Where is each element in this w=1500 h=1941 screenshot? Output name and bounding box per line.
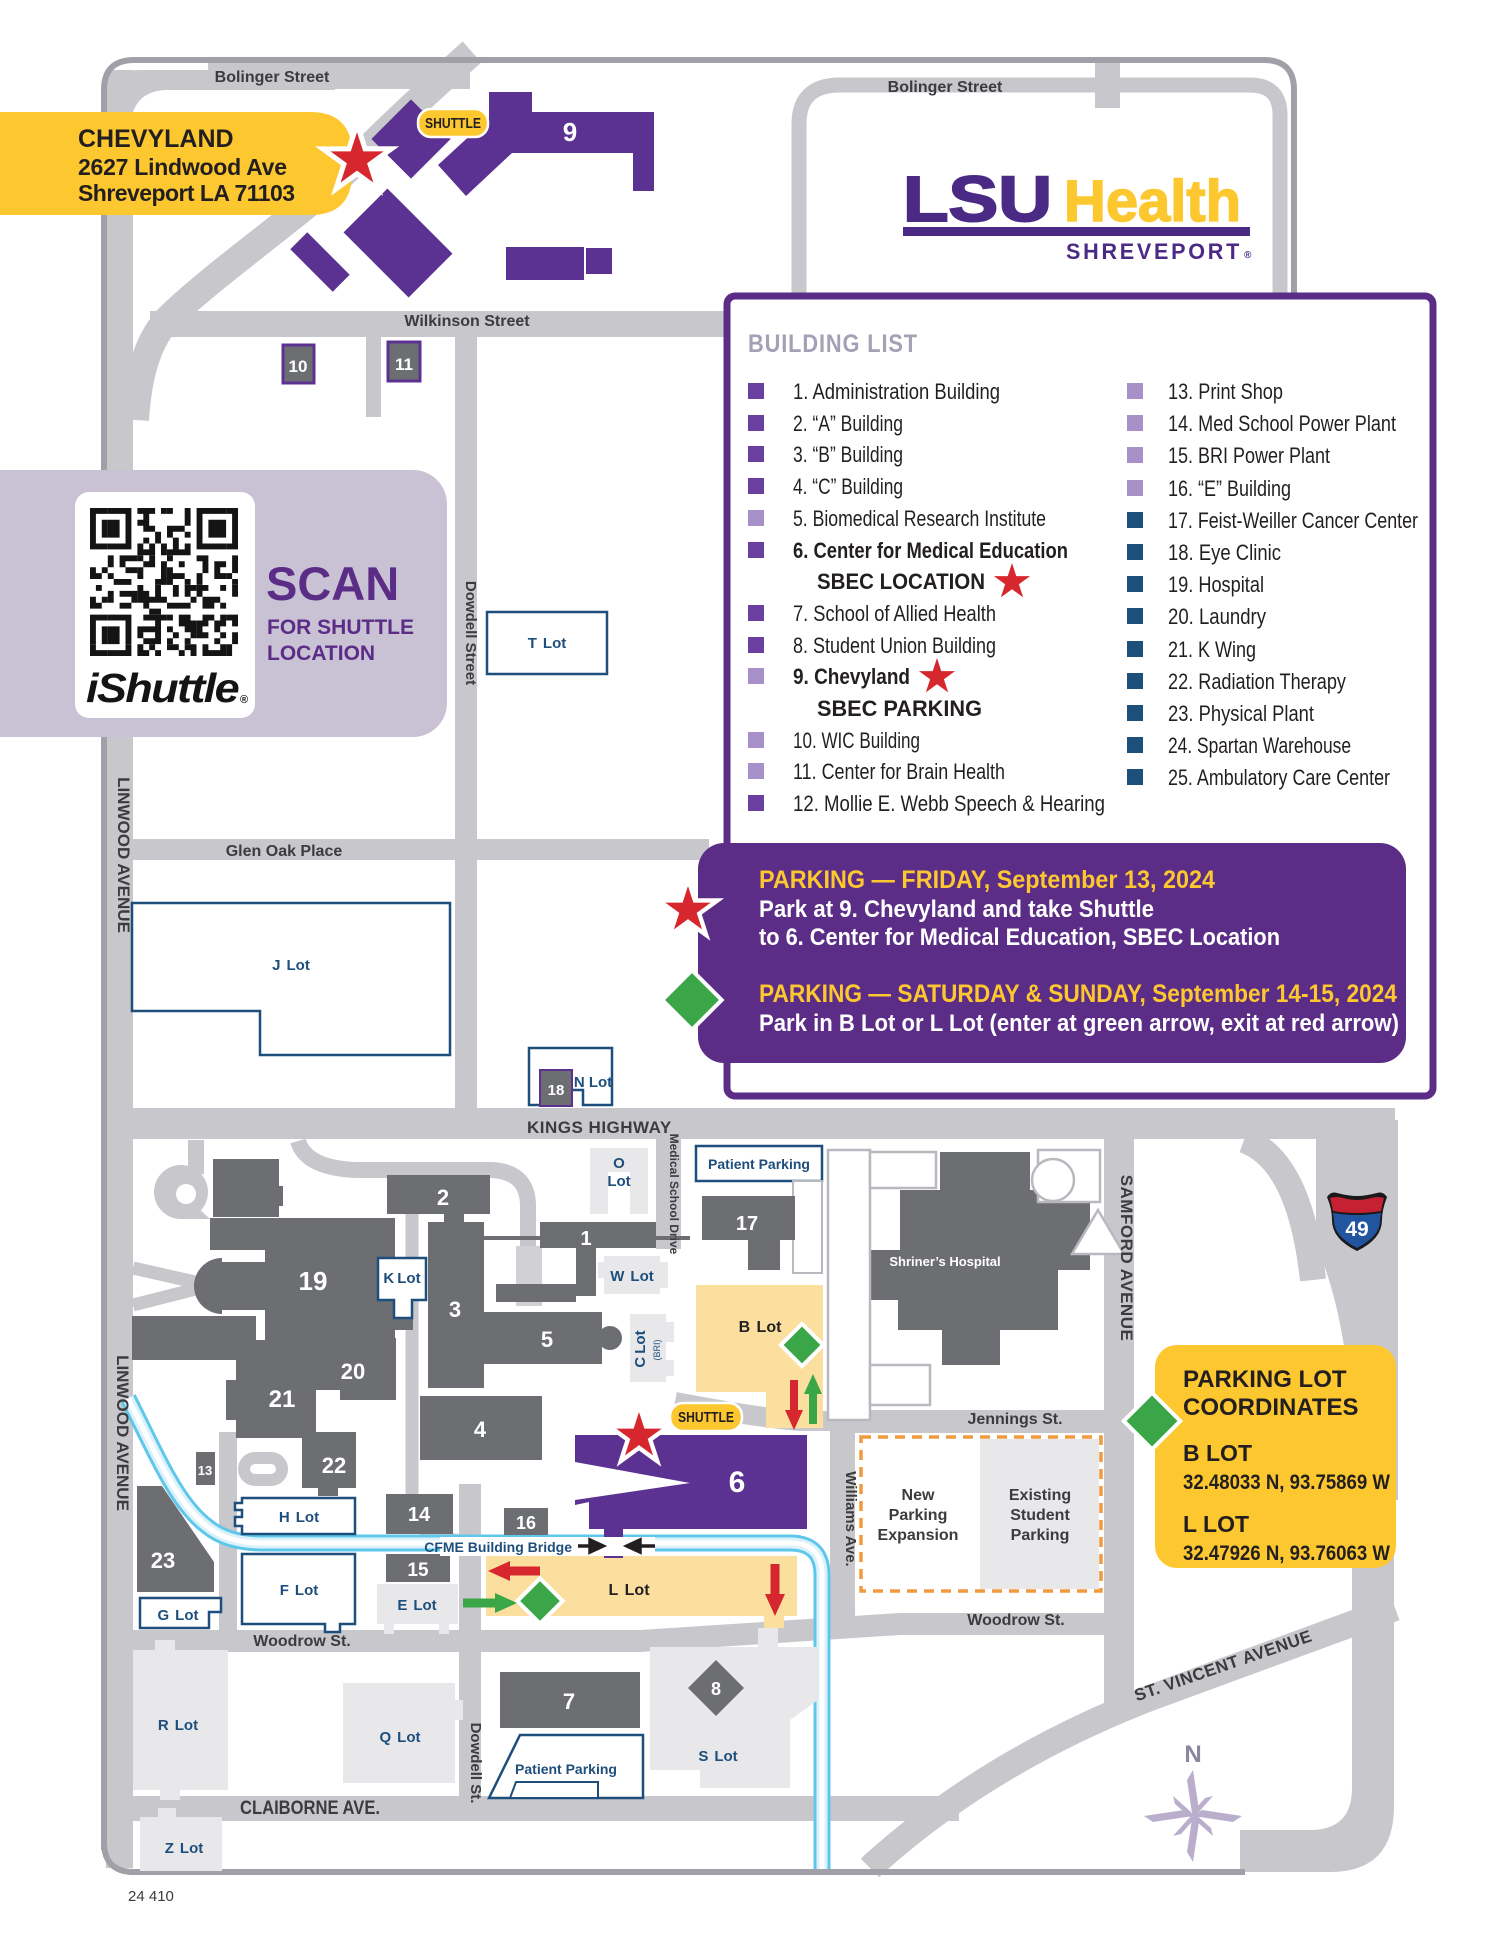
svg-text:1. Administration Building: 1. Administration Building [793, 379, 1000, 404]
svg-text:6. Center for Medical Educatio: 6. Center for Medical Education [793, 538, 1068, 563]
svg-text:5. Biomedical Research Institu: 5. Biomedical Research Institute [793, 506, 1046, 531]
svg-text:LINWOOD AVENUE: LINWOOD AVENUE [114, 777, 133, 933]
svg-text:8. Student Union Building: 8. Student Union Building [793, 633, 996, 658]
svg-text:FOR SHUTTLE: FOR SHUTTLE [267, 616, 414, 639]
svg-text:13: 13 [198, 1463, 212, 1478]
svg-text:17. Feist-Weiller Cancer Cente: 17. Feist-Weiller Cancer Center [1168, 508, 1418, 533]
svg-text:5: 5 [541, 1327, 553, 1352]
svg-text:6: 6 [729, 1466, 746, 1499]
svg-text:15: 15 [407, 1560, 429, 1581]
svg-text:8: 8 [711, 1679, 721, 1699]
svg-text:19. Hospital: 19. Hospital [1168, 572, 1264, 597]
svg-text:3: 3 [449, 1297, 461, 1322]
svg-text:CHEVYLAND: CHEVYLAND [78, 125, 234, 153]
svg-text:®: ® [240, 694, 248, 706]
svg-text:3. “B” Building: 3. “B” Building [793, 442, 903, 467]
svg-text:ST. VINCENT AVENUE: ST. VINCENT AVENUE [1132, 1626, 1315, 1705]
svg-text:E Lot: E Lot [397, 1597, 436, 1614]
svg-text:10. WIC Building: 10. WIC Building [793, 728, 920, 753]
svg-text:F Lot: F Lot [280, 1582, 319, 1599]
svg-text:21: 21 [269, 1386, 296, 1413]
svg-text:20. Laundry: 20. Laundry [1168, 604, 1266, 629]
svg-text:7: 7 [563, 1689, 575, 1714]
svg-text:Woodrow St.: Woodrow St. [967, 1612, 1064, 1629]
svg-text:SBEC LOCATION: SBEC LOCATION [817, 569, 985, 594]
svg-text:Dowdell St.: Dowdell St. [467, 1723, 484, 1804]
svg-text:S Lot: S Lot [698, 1748, 737, 1765]
svg-text:SBEC PARKING: SBEC PARKING [817, 696, 982, 721]
svg-text:Parking: Parking [1011, 1527, 1070, 1544]
svg-text:9: 9 [563, 117, 577, 147]
svg-text:Q Lot: Q Lot [380, 1729, 421, 1746]
svg-text:2: 2 [437, 1185, 449, 1210]
svg-text:PARKING — SATURDAY & SUNDAY, S: PARKING — SATURDAY & SUNDAY, September 1… [759, 980, 1397, 1008]
svg-text:Woodrow St.: Woodrow St. [253, 1633, 350, 1650]
svg-text:Lot: Lot [607, 1173, 630, 1190]
svg-text:Patient Parking: Patient Parking [708, 1156, 810, 1172]
svg-text:Williams Ave.: Williams Ave. [842, 1471, 859, 1566]
svg-text:C Lot: C Lot [632, 1330, 649, 1367]
svg-text:2. “A” Building: 2. “A” Building [793, 411, 903, 436]
svg-text:L Lot: L Lot [608, 1582, 650, 1599]
svg-text:SAMFORD AVENUE: SAMFORD AVENUE [1117, 1175, 1136, 1342]
svg-text:to 6. Center for Medical Educa: to 6. Center for Medical Education, SBEC… [759, 924, 1280, 951]
svg-text:7. School of Allied Health: 7. School of Allied Health [793, 601, 996, 626]
svg-text:Bolinger Street: Bolinger Street [888, 79, 1003, 96]
svg-text:Park at 9. Chevyland and take: Park at 9. Chevyland and take Shuttle [759, 896, 1154, 923]
svg-text:K Lot: K Lot [383, 1270, 420, 1287]
svg-text:PARKING LOT: PARKING LOT [1183, 1366, 1347, 1393]
svg-text:16. “E” Building: 16. “E” Building [1168, 476, 1291, 501]
svg-text:24 410: 24 410 [128, 1888, 174, 1905]
svg-text:Dowdell Street: Dowdell Street [462, 581, 479, 685]
svg-text:L LOT: L LOT [1183, 1511, 1249, 1537]
svg-text:SCAN: SCAN [266, 557, 399, 610]
svg-text:Parking: Parking [889, 1507, 948, 1524]
svg-text:Bolinger Street: Bolinger Street [215, 69, 330, 86]
svg-text:15. BRI Power Plant: 15. BRI Power Plant [1168, 443, 1330, 468]
svg-text:BUILDING LIST: BUILDING LIST [748, 330, 918, 358]
svg-text:16: 16 [516, 1513, 536, 1533]
svg-text:32.48033 N, 93.75869 W: 32.48033 N, 93.75869 W [1183, 1471, 1390, 1494]
svg-text:12. Mollie E. Webb Speech & He: 12. Mollie E. Webb Speech & Hearing [793, 791, 1105, 816]
svg-text:COORDINATES: COORDINATES [1183, 1394, 1359, 1421]
svg-text:N: N [1184, 1741, 1201, 1768]
svg-text:18. Eye Clinic: 18. Eye Clinic [1168, 540, 1281, 565]
svg-text:N Lot: N Lot [574, 1074, 612, 1091]
svg-text:R Lot: R Lot [158, 1717, 198, 1734]
svg-text:13. Print Shop: 13. Print Shop [1168, 379, 1283, 404]
svg-text:11. Center for Brain Health: 11. Center for Brain Health [793, 759, 1005, 784]
svg-text:Shriner’s Hospital: Shriner’s Hospital [889, 1254, 1000, 1269]
svg-text:CFME Building Bridge: CFME Building Bridge [424, 1539, 572, 1555]
svg-text:Jennings St.: Jennings St. [967, 1411, 1062, 1428]
svg-text:Patient Parking: Patient Parking [515, 1761, 617, 1777]
svg-text:24. Spartan Warehouse: 24. Spartan Warehouse [1168, 733, 1351, 758]
svg-text:W Lot: W Lot [610, 1268, 653, 1285]
svg-text:SHREVEPORT: SHREVEPORT [1066, 239, 1242, 264]
svg-text:O: O [613, 1155, 625, 1172]
svg-text:19: 19 [299, 1266, 328, 1296]
svg-text:Student: Student [1010, 1507, 1070, 1524]
svg-text:J Lot: J Lot [272, 957, 310, 974]
svg-text:Glen Oak Place: Glen Oak Place [226, 843, 343, 860]
svg-text:B LOT: B LOT [1183, 1440, 1252, 1466]
svg-text:9. Chevyland: 9. Chevyland [793, 664, 910, 689]
svg-text:1: 1 [580, 1228, 591, 1250]
svg-text:49: 49 [1345, 1218, 1368, 1241]
svg-text:4. “C” Building: 4. “C” Building [793, 474, 903, 499]
svg-text:Medical School Drive: Medical School Drive [667, 1134, 681, 1255]
svg-text:SHUTTLE: SHUTTLE [425, 115, 481, 132]
svg-text:T Lot: T Lot [528, 635, 567, 652]
svg-text:22. Radiation Therapy: 22. Radiation Therapy [1168, 669, 1346, 694]
svg-text:25. Ambulatory Care Center: 25. Ambulatory Care Center [1168, 765, 1390, 790]
svg-text:LSU: LSU [903, 163, 1052, 235]
svg-text:14. Med School Power Plant: 14. Med School Power Plant [1168, 411, 1396, 436]
svg-text:KINGS HIGHWAY: KINGS HIGHWAY [527, 1118, 672, 1137]
svg-text:23. Physical Plant: 23. Physical Plant [1168, 701, 1314, 726]
svg-text:PARKING — FRIDAY, September 13: PARKING — FRIDAY, September 13, 2024 [759, 866, 1215, 894]
svg-text:CLAIBORNE AVE.: CLAIBORNE AVE. [240, 1798, 380, 1819]
svg-text:21. K Wing: 21. K Wing [1168, 637, 1256, 662]
svg-text:LINWOOD AVENUE: LINWOOD AVENUE [113, 1355, 132, 1511]
svg-text:Z Lot: Z Lot [165, 1840, 204, 1857]
svg-text:H Lot: H Lot [279, 1509, 319, 1526]
svg-text:Existing: Existing [1009, 1487, 1071, 1504]
svg-text:18: 18 [548, 1082, 565, 1099]
svg-text:Park in B Lot or L Lot (enter: Park in B Lot or L Lot (enter at green a… [759, 1010, 1399, 1037]
svg-text:Wilkinson Street: Wilkinson Street [404, 313, 530, 330]
svg-text:20: 20 [341, 1359, 365, 1384]
svg-text:22: 22 [322, 1453, 346, 1478]
svg-text:14: 14 [408, 1504, 431, 1526]
svg-text:2627 Lindwood Ave: 2627 Lindwood Ave [78, 154, 287, 180]
svg-text:32.47926 N, 93.76063 W: 32.47926 N, 93.76063 W [1183, 1542, 1390, 1565]
svg-text:10: 10 [289, 357, 308, 376]
svg-text:4: 4 [474, 1417, 487, 1442]
svg-text:17: 17 [736, 1213, 758, 1235]
svg-text:New: New [902, 1487, 935, 1504]
svg-text:23: 23 [151, 1548, 175, 1573]
svg-text:LOCATION: LOCATION [267, 642, 375, 665]
svg-text:®: ® [1244, 250, 1252, 261]
svg-text:G Lot: G Lot [158, 1607, 199, 1624]
svg-text:SHUTTLE: SHUTTLE [678, 1409, 734, 1426]
svg-text:Shreveport LA 71103: Shreveport LA 71103 [78, 180, 295, 206]
svg-text:Health: Health [1064, 169, 1241, 234]
svg-text:Expansion: Expansion [878, 1527, 959, 1544]
svg-text:iShuttle: iShuttle [86, 665, 239, 711]
svg-text:11: 11 [395, 355, 413, 374]
svg-text:B Lot: B Lot [739, 1319, 783, 1336]
svg-text:(BRI): (BRI) [652, 1340, 662, 1361]
